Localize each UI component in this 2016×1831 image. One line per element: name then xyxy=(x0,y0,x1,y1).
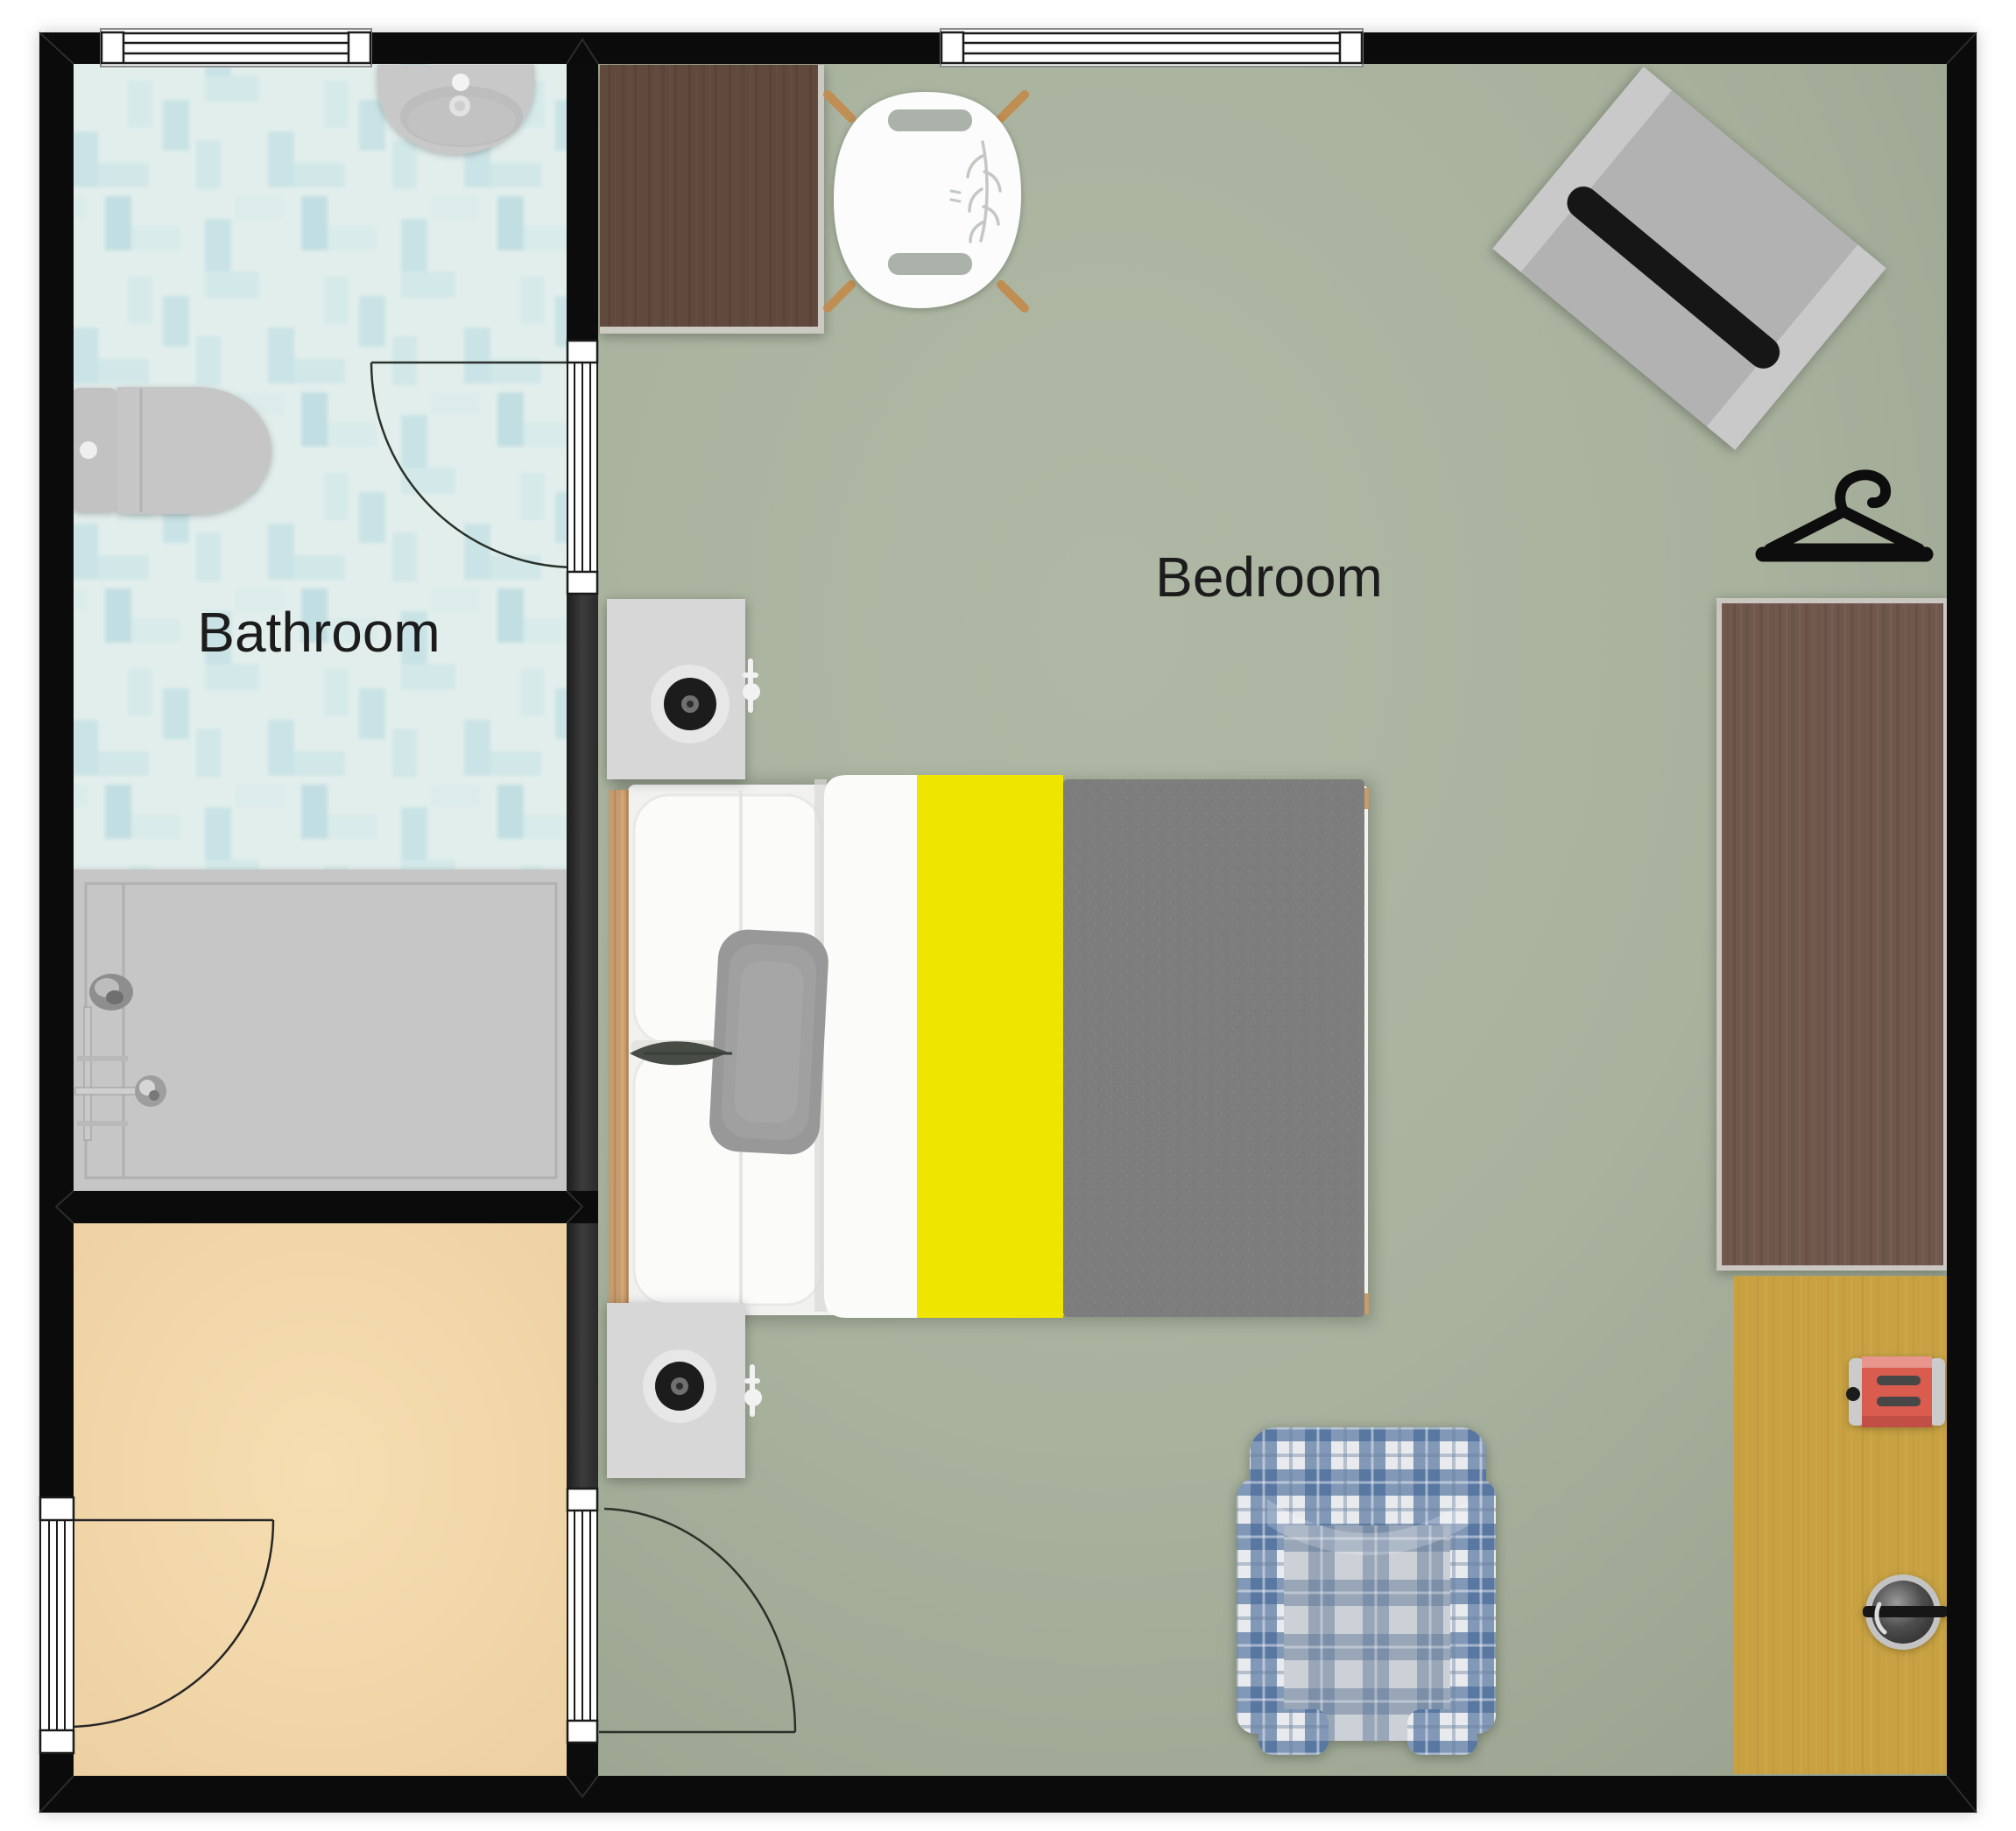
svg-text:Bedroom: Bedroom xyxy=(1155,546,1383,609)
svg-text:Bathroom: Bathroom xyxy=(197,601,440,664)
